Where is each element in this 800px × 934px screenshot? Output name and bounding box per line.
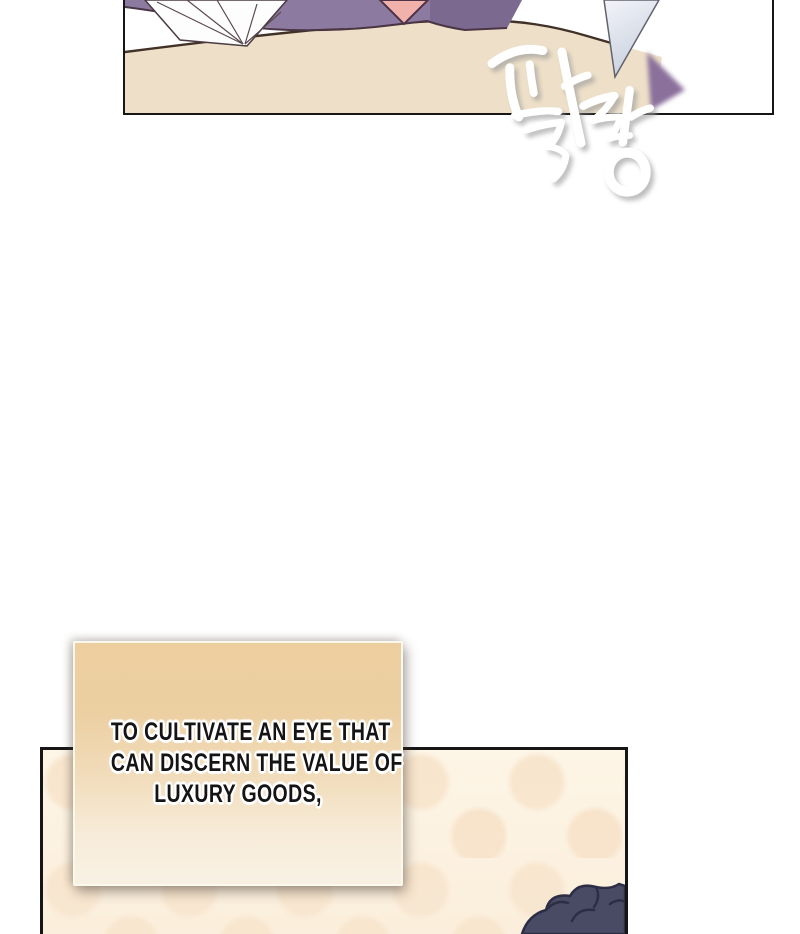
- narration-line: TO CULTIVATE AN EYE THAT: [111, 717, 365, 748]
- narration-text: TO CULTIVATE AN EYE THAT CAN DISCERN THE…: [111, 717, 365, 810]
- narration-line: LUXURY GOODS,: [111, 779, 365, 810]
- narration-line: CAN DISCERN THE VALUE OF: [111, 748, 365, 779]
- panel-top-artwork: [123, 0, 774, 115]
- narration-box: TO CULTIVATE AN EYE THAT CAN DISCERN THE…: [73, 641, 403, 886]
- dark-hair-shape: [520, 879, 625, 934]
- panel-top-illustration: [125, 0, 772, 113]
- hair-fill: [522, 884, 625, 934]
